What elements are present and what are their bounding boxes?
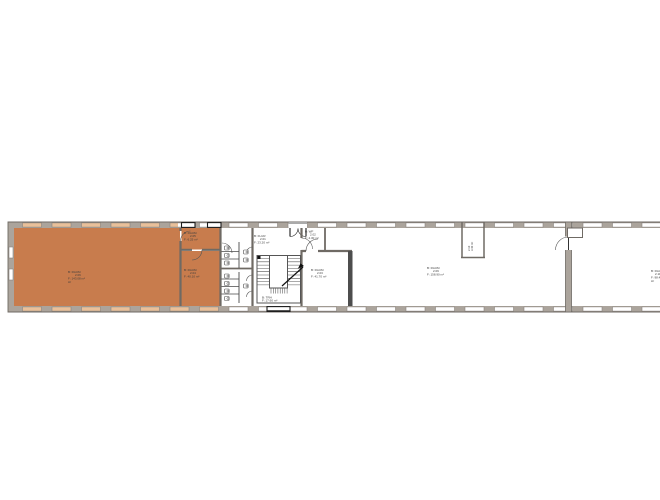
svg-text:3.40 m²: 3.40 m² [470, 242, 474, 251]
wc-fixtures [225, 246, 249, 301]
window-left-1 [9, 247, 13, 258]
window-left-2 [9, 269, 13, 280]
svg-text:F: 23.20 m²: F: 23.20 m² [254, 240, 269, 244]
room-highlight-main[interactable] [14, 228, 180, 306]
door-arc-entrance-left [290, 229, 298, 237]
svg-text:F: 4.30 m²: F: 4.30 m² [305, 236, 319, 240]
window-band-top-highlight [14, 222, 178, 228]
room-label-corridor: B: FLUR 2.01 F: 23.20 m² [254, 234, 269, 244]
room-label-f: B: RAUM 2.11 F: 98.40 LF [651, 269, 660, 283]
room-label-vestibule: B: WF 2.02 F: 4.30 m² [305, 230, 319, 240]
svg-text:F: 158.90 m²: F: 158.90 m² [427, 272, 444, 276]
room-label-e: B: RAUM 2.09 F: 158.90 m² [427, 266, 444, 276]
svg-text:LF: LF [68, 280, 71, 284]
svg-text:F: 98.40: F: 98.40 [651, 275, 660, 279]
svg-text:F: 6.25 m²: F: 6.25 m² [184, 237, 198, 241]
floor-plan-page: B: RAUM 2.06 F: 143.08 m² LF B: RAUM 2.0… [0, 0, 660, 500]
window-dark-2 [208, 223, 222, 228]
wall-left [8, 222, 14, 312]
svg-text:F: 17.60 m²: F: 17.60 m² [262, 299, 277, 303]
room-label-d: B: RAUM 2.03 F: 41.70 m² [311, 268, 326, 278]
room-label-shaft: 2.10 3.40 m² [467, 242, 474, 251]
stair-marker [258, 256, 261, 259]
wc-block [222, 242, 249, 303]
wc-partitions-h [222, 252, 240, 295]
window-band-bottom-highlight [14, 306, 221, 312]
pilaster-box [568, 228, 583, 238]
svg-text:F: 143.08 m²: F: 143.08 m² [68, 276, 85, 280]
window-dark-1 [182, 223, 196, 228]
svg-text:F: 40.10 m²: F: 40.10 m² [184, 274, 199, 278]
wall-thick [348, 251, 353, 306]
floor-plan-canvas: B: RAUM 2.06 F: 143.08 m² LF B: RAUM 2.0… [0, 0, 660, 500]
svg-text:F: 41.70 m²: F: 41.70 m² [311, 274, 326, 278]
svg-text:LF: LF [651, 279, 654, 283]
room-highlight-small-bottom[interactable] [182, 251, 221, 306]
wall-right-section [556, 222, 583, 312]
